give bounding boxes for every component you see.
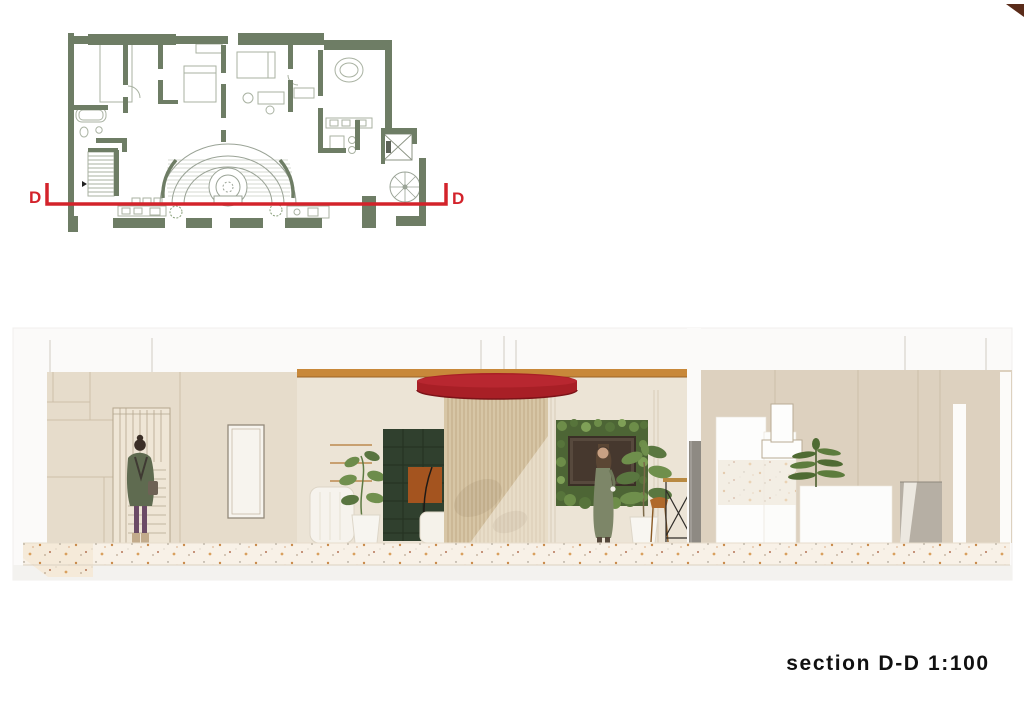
red-canopy — [417, 373, 577, 399]
plan-staircase — [82, 152, 114, 196]
section-label-right: D — [452, 189, 464, 208]
corner-marker-icon — [1006, 4, 1024, 17]
plan-elevator — [384, 134, 412, 160]
plan-amphitheater — [160, 144, 296, 206]
sheet-canvas: D D — [0, 0, 1024, 724]
gray-angled-panel — [900, 482, 942, 543]
section-view — [13, 328, 1012, 580]
plan-walls — [68, 33, 426, 232]
section-footing — [13, 565, 1012, 580]
slat-curtain — [444, 389, 548, 543]
section-label-left: D — [29, 188, 41, 207]
white-sofa — [310, 487, 354, 543]
presentation-sheet: D D — [0, 0, 1024, 724]
floor-plan: D D — [29, 33, 464, 232]
leaning-mirror — [228, 425, 264, 518]
plan-spiral-staircase — [390, 172, 420, 202]
section-caption: section D-D 1:100 — [786, 652, 989, 675]
